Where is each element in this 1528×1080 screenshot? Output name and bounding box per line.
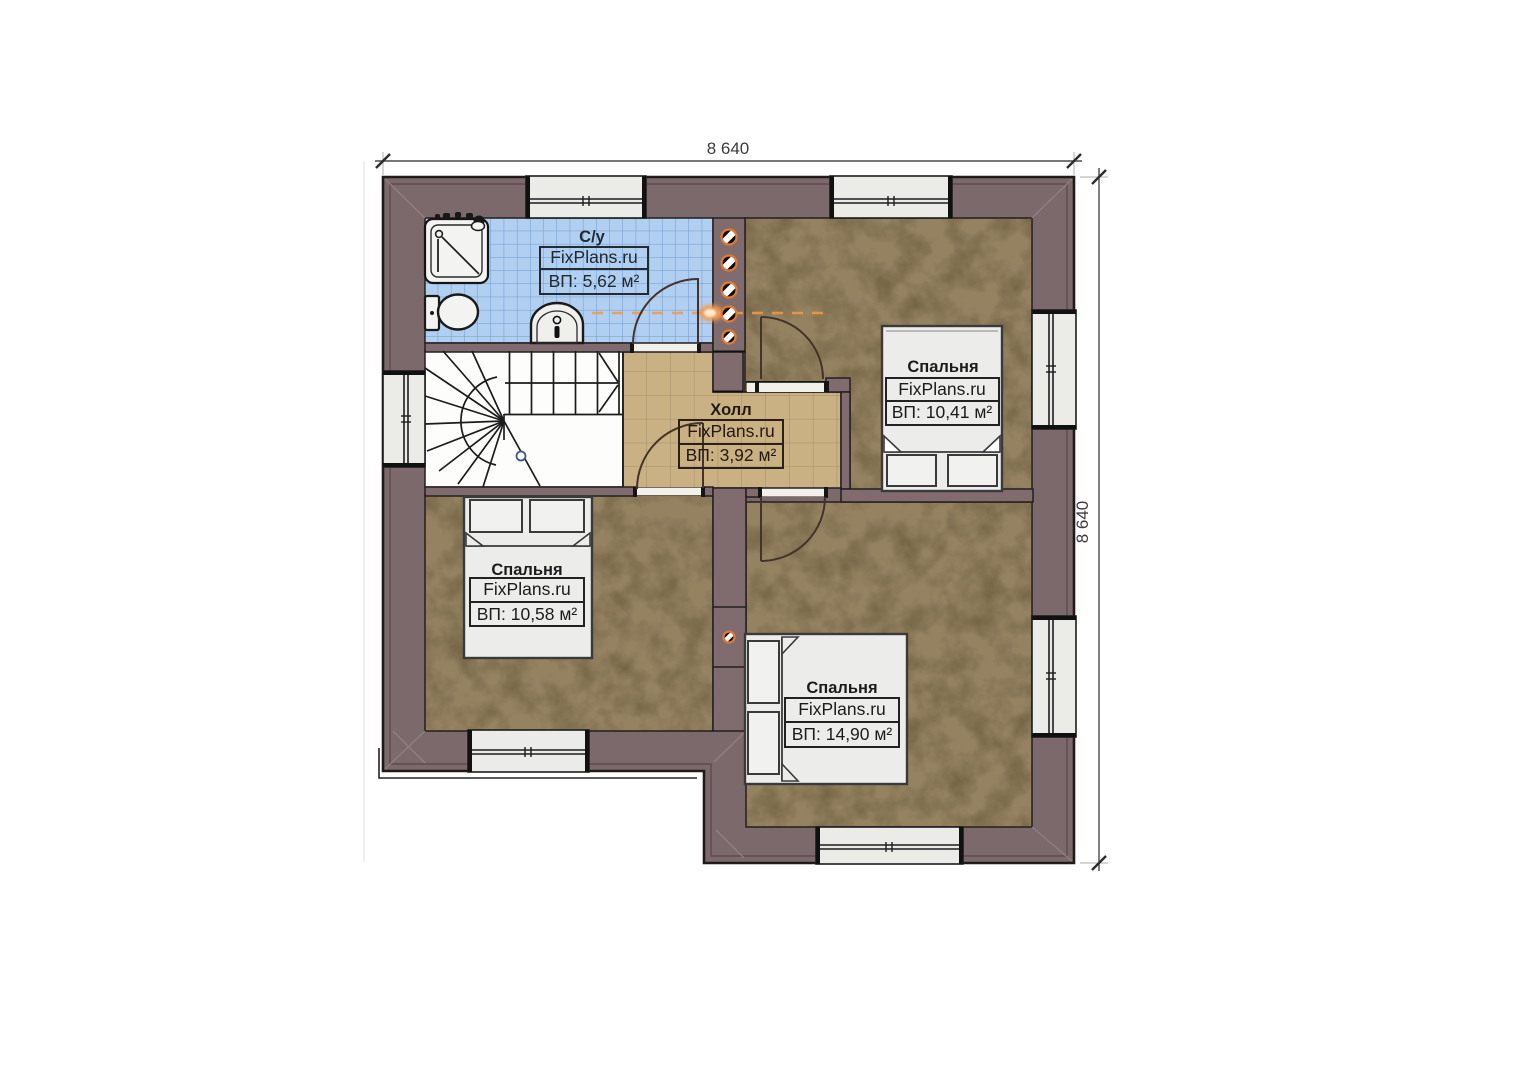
svg-text:Холл: Холл [710,401,751,419]
svg-text:С/у: С/у [579,228,606,246]
svg-text:8 640: 8 640 [707,139,750,158]
svg-text:Спальня: Спальня [907,358,978,376]
svg-text:ВП: 5,62 м²: ВП: 5,62 м² [549,271,640,291]
svg-text:ВП: 10,41 м²: ВП: 10,41 м² [892,402,993,422]
svg-text:Спальня: Спальня [491,561,562,579]
svg-text:FixPlans.ru: FixPlans.ru [798,699,886,719]
svg-text:ВП: 14,90 м²: ВП: 14,90 м² [792,724,893,744]
svg-text:ВП: 10,58 м²: ВП: 10,58 м² [477,604,578,624]
svg-text:8 640: 8 640 [1073,501,1092,544]
svg-text:FixPlans.ru: FixPlans.ru [687,421,775,441]
svg-text:FixPlans.ru: FixPlans.ru [483,579,571,599]
svg-text:FixPlans.ru: FixPlans.ru [550,247,638,267]
svg-text:Спальня: Спальня [806,679,877,697]
svg-text:ВП: 3,92 м²: ВП: 3,92 м² [686,445,777,465]
svg-text:FixPlans.ru: FixPlans.ru [898,379,986,399]
